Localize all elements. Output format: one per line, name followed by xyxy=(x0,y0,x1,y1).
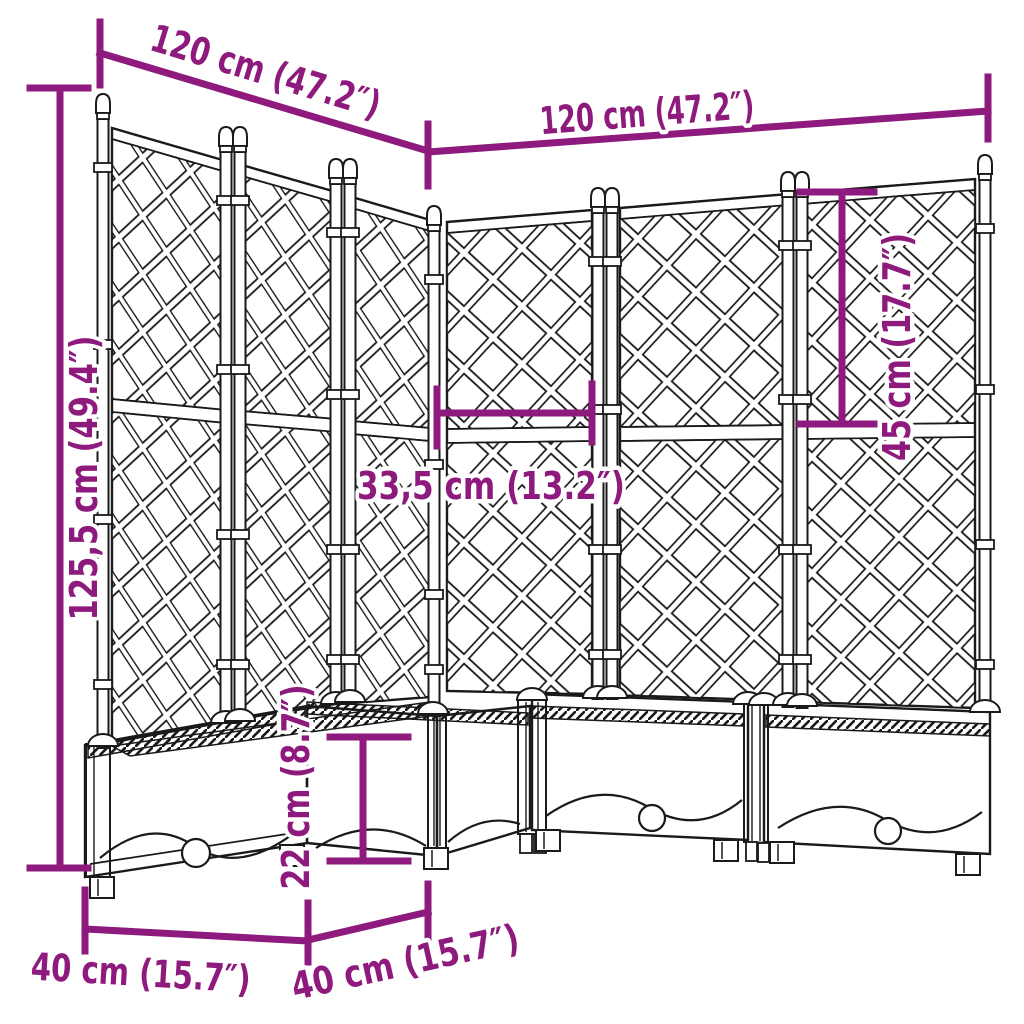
dim-label-panel-width: 33,5 cm (13.2″) xyxy=(357,464,625,508)
trellis-left-wing xyxy=(112,128,430,741)
dim-label-left-wing-width: 120 cm (47.2″) xyxy=(146,16,387,127)
dim-line-box-height xyxy=(330,737,408,861)
dim-label-box-height: 22 cm (8.7″) xyxy=(274,685,318,890)
dim-label-upper-section-height: 45 cm (17.7″) xyxy=(875,233,919,461)
dim-label-right-wing-width: 120 cm (47.2″) xyxy=(538,83,756,143)
planter-boxes xyxy=(85,686,1000,898)
dim-label-total-height: 125,5 cm (49.4″) xyxy=(62,336,106,621)
dim-label-depth-side: 40 cm (15.7″) xyxy=(287,916,523,1009)
diagram-page: 120 cm (47.2″) 120 cm (47.2″) 125,5 cm (… xyxy=(0,0,1024,1024)
dim-line-depth-side xyxy=(308,884,428,945)
planter-trellis-dimension-diagram: 120 cm (47.2″) 120 cm (47.2″) 125,5 cm (… xyxy=(0,0,1024,1024)
dim-label-depth-front: 40 cm (15.7″) xyxy=(30,945,252,1002)
